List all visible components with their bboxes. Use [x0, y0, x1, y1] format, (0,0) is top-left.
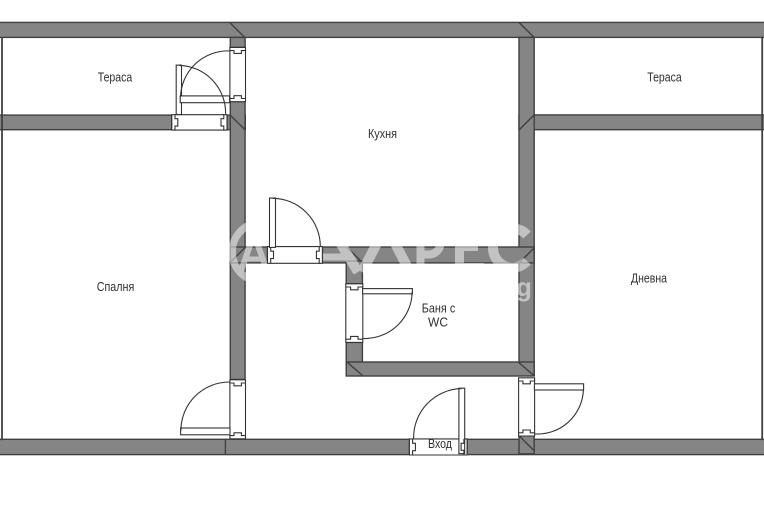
svg-text:Спалня: Спалня [97, 280, 135, 294]
svg-text:Тераса: Тераса [98, 70, 133, 84]
svg-text:Кухня: Кухня [368, 127, 397, 141]
svg-text:WC: WC [428, 315, 448, 329]
svg-text:Дневна: Дневна [631, 271, 667, 285]
svg-text:Баня с: Баня с [422, 301, 456, 315]
svg-text:Тераса: Тераса [647, 70, 682, 84]
svg-text:g: g [516, 272, 532, 302]
svg-text:Вход: Вход [428, 437, 453, 451]
